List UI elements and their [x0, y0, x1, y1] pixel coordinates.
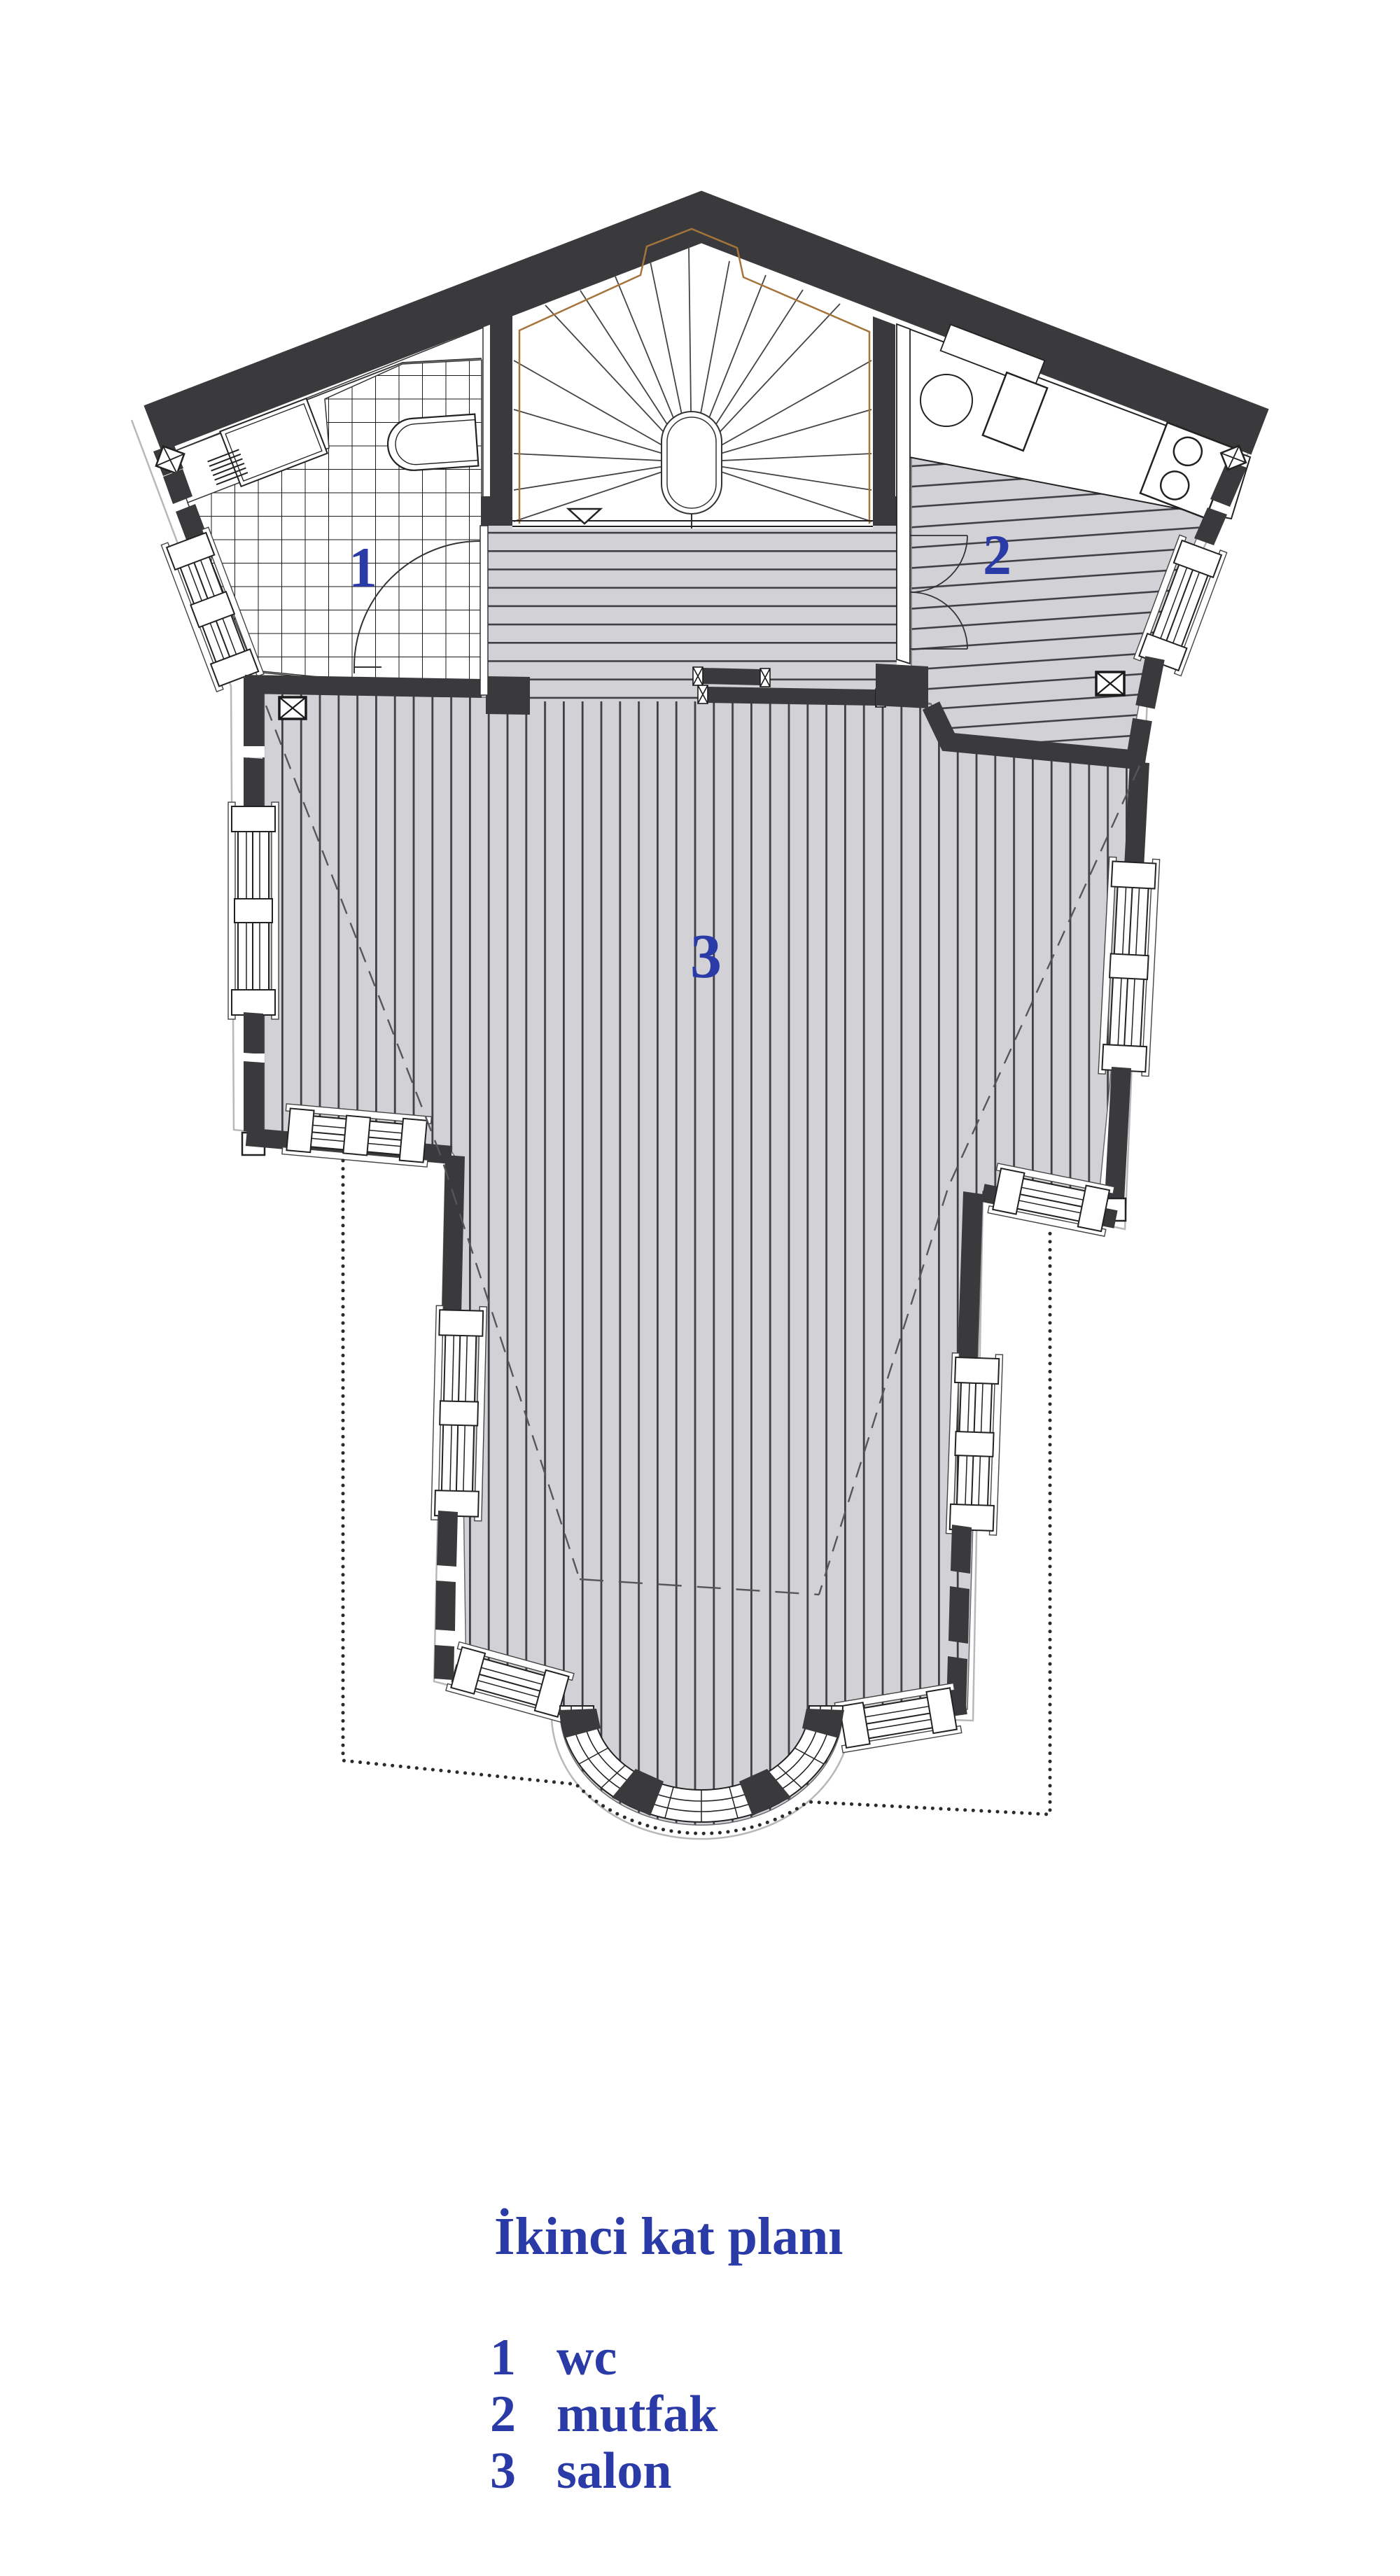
- svg-text:mutfak: mutfak: [556, 2386, 718, 2443]
- svg-text:1: 1: [490, 2329, 516, 2386]
- svg-text:3: 3: [490, 2442, 516, 2500]
- svg-text:2: 2: [983, 523, 1011, 587]
- svg-text:İkinci kat planı: İkinci kat planı: [494, 2207, 843, 2266]
- svg-text:3: 3: [690, 922, 722, 991]
- svg-text:salon: salon: [556, 2442, 672, 2500]
- svg-text:1: 1: [349, 535, 377, 599]
- svg-text:wc: wc: [556, 2329, 617, 2386]
- svg-text:2: 2: [490, 2386, 516, 2443]
